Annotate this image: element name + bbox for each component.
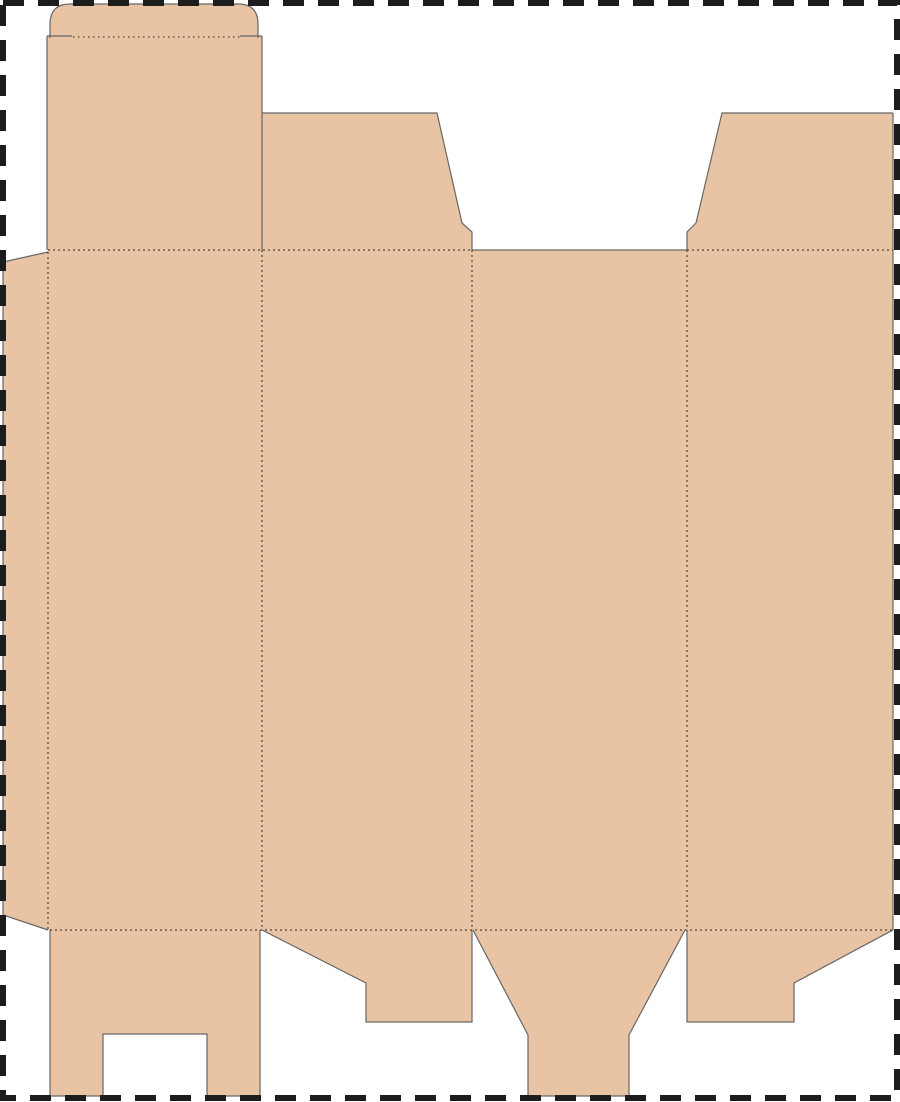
bottom-tuck-flap-fill	[473, 930, 685, 1096]
lid-panel-fill	[47, 36, 262, 250]
dieline-canvas	[0, 0, 900, 1102]
bottom-flap-2-fill	[262, 930, 472, 1022]
glue-flap-fill	[3, 252, 48, 930]
tuck-flap-fill	[50, 4, 258, 38]
dust-flap-right-fill	[687, 113, 893, 250]
main-body-fill	[48, 250, 893, 930]
bottom-flap-4-fill	[687, 930, 893, 1022]
panel-fills	[3, 4, 893, 1096]
dieline-svg	[0, 0, 900, 1102]
bottom-flap-1-fill	[50, 930, 260, 1096]
dust-flap-left-fill	[262, 113, 472, 250]
